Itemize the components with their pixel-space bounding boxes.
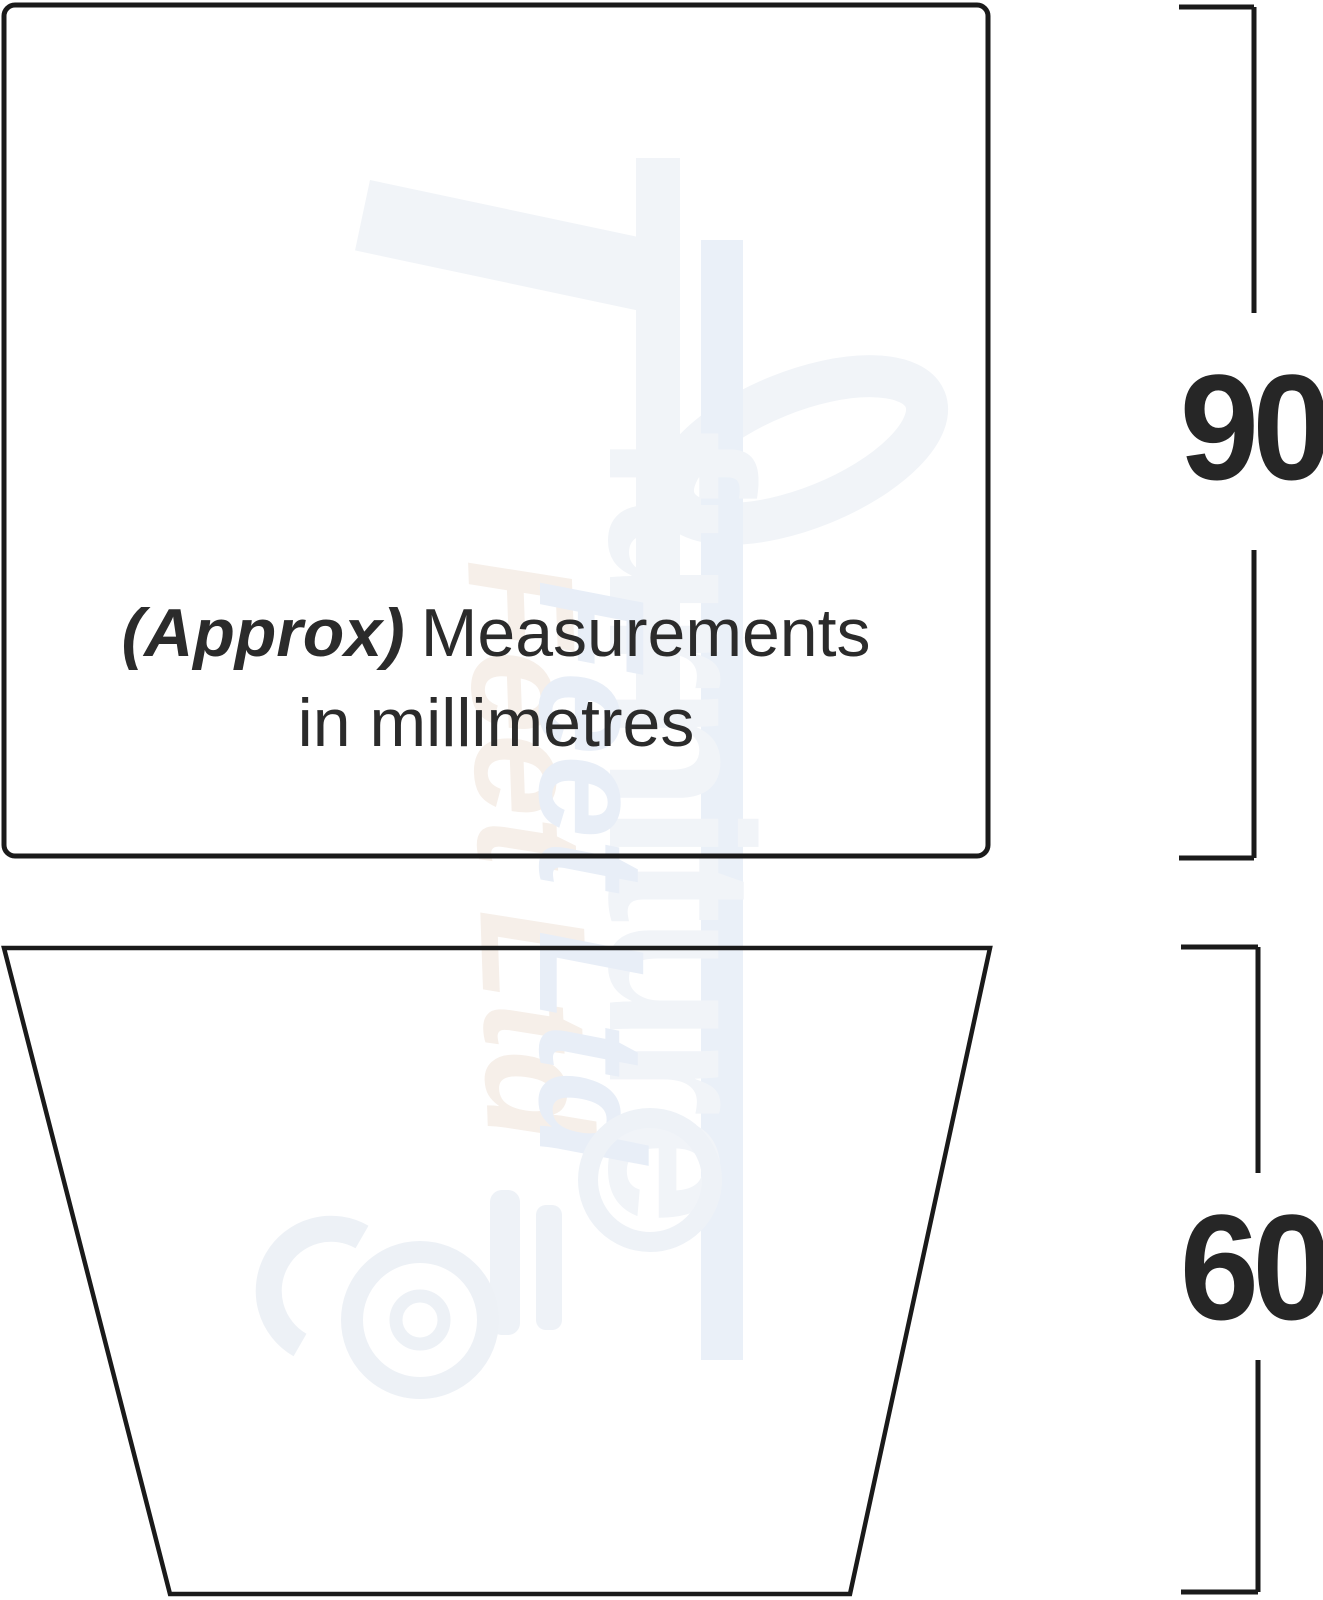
watermark-furniture-feet-ltd-logo: furniture Feet Ltd Feet Ltd xyxy=(269,158,947,1388)
note-measurements-text: Measurements xyxy=(421,595,871,671)
note-line-1: (Approx)Measurements xyxy=(2,588,990,678)
dimension-90-label: 90 xyxy=(1180,352,1323,502)
watermark-crossbar-shape xyxy=(355,180,663,313)
dimension-60-label: 60 xyxy=(1180,1192,1323,1342)
watermark-castor-wheel-hub xyxy=(396,1296,444,1344)
note-line-2: in millimetres xyxy=(2,678,990,768)
watermark-bar2-shape xyxy=(536,1205,562,1330)
note-approx-text: (Approx) xyxy=(121,595,404,671)
approx-measurements-note: (Approx)Measurements in millimetres xyxy=(2,588,990,768)
diagram-drawing: furniture Feet Ltd Feet Ltd xyxy=(0,0,1323,1600)
watermark-castor-wheel-outer xyxy=(352,1252,488,1388)
dimension-diagram-sheet: furniture Feet Ltd Feet Ltd (Approx)Meas… xyxy=(0,0,1323,1600)
